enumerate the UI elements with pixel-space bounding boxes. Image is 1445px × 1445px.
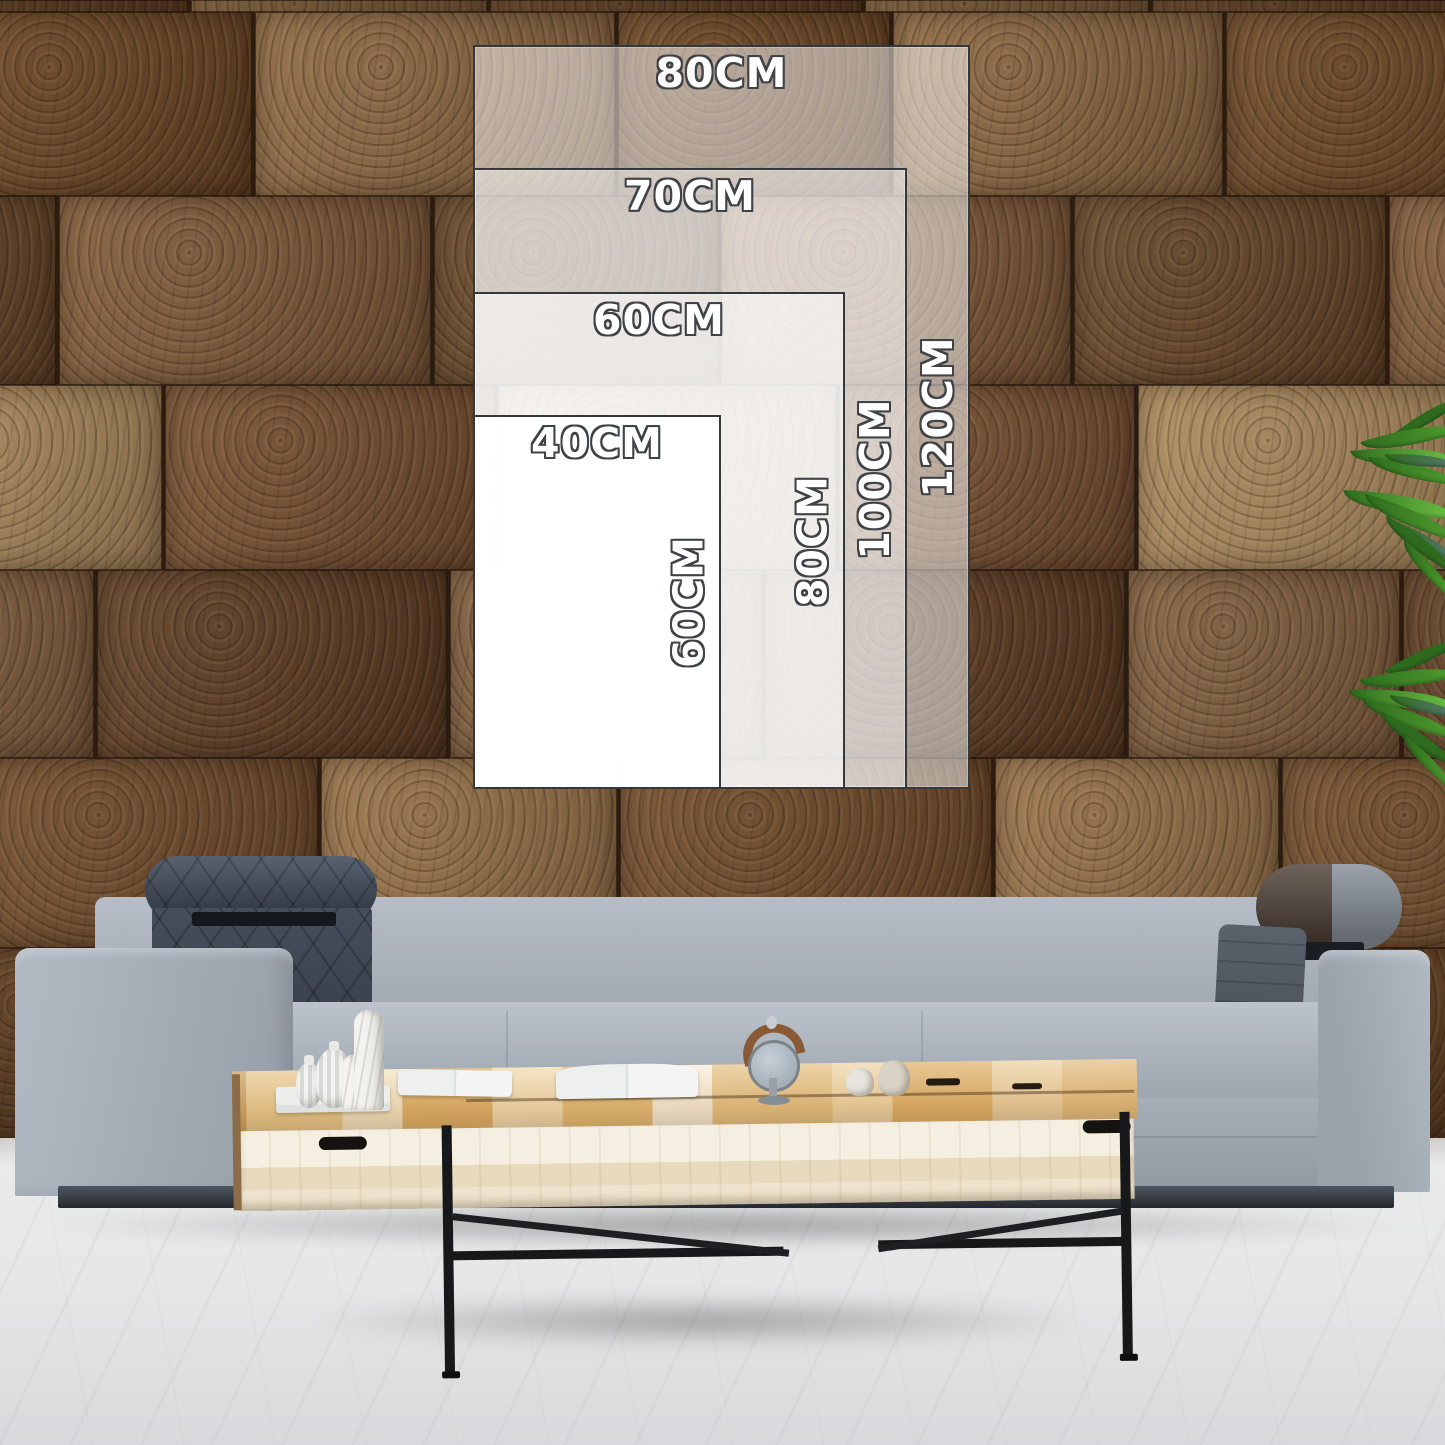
wall-wood-block: [0, 12, 252, 196]
wall-wood-block: [191, 0, 487, 12]
size-label-70cm-width: 70CM: [475, 176, 905, 217]
size-label-100cm-height: 100CM: [855, 398, 896, 559]
table-handle-left: [319, 1136, 367, 1150]
wall-wood-block: [490, 0, 862, 12]
open-book: [398, 1069, 512, 1097]
wall-wood-block: [1389, 196, 1445, 385]
wall-wood-block: [1128, 570, 1400, 758]
wall-wood-block: [1226, 12, 1445, 196]
size-label-60cm-width: 60CM: [475, 300, 843, 341]
wall-wood-block: [1403, 570, 1445, 758]
size-guide-mockup-scene: 80CM 120CM 70CM 100CM 60CM 80CM 40CM 60C…: [0, 0, 1445, 1445]
vase-neck: [329, 1041, 339, 1051]
vase-neck: [304, 1055, 314, 1065]
table-top-slot: [926, 1078, 960, 1085]
table-foot: [1120, 1354, 1138, 1361]
marble-vase-tall: [354, 1010, 384, 1110]
sofa-armrest-right: [1318, 950, 1430, 1192]
wall-wood-block: [165, 385, 495, 570]
small-dome-ornament: [878, 1060, 910, 1096]
wall-wood-block: [0, 385, 162, 570]
wall-wood-block: [1074, 196, 1386, 385]
sofa-headrest-clip: [192, 912, 336, 926]
size-rect-40x60: 40CM 60CM: [473, 415, 721, 789]
size-label-120cm-height: 120CM: [918, 336, 959, 497]
table-mirror-base: [758, 1096, 790, 1105]
table-mirror-knob: [766, 1016, 777, 1029]
wall-wood-block: [1152, 0, 1445, 12]
wall-wood-block: [59, 196, 431, 385]
size-label-40cm-width: 40CM: [475, 423, 719, 464]
table-front-face: [239, 1119, 1135, 1211]
wall-wood-block: [97, 570, 447, 758]
wall-wood-block: [865, 0, 1149, 12]
size-label-80cm-height: 80CM: [793, 475, 834, 607]
wall-wood-block: [0, 570, 94, 758]
small-dome-ornament: [846, 1068, 874, 1096]
open-book: [556, 1063, 699, 1099]
table-foot: [442, 1371, 460, 1378]
table-top-slot: [1012, 1083, 1042, 1089]
wall-wood-block: [1138, 385, 1445, 570]
wall-wood-block: [0, 196, 56, 385]
size-label-60cm-height: 60CM: [669, 536, 710, 668]
wall-wood-block: [0, 0, 188, 12]
size-label-80cm-width: 80CM: [475, 53, 968, 94]
